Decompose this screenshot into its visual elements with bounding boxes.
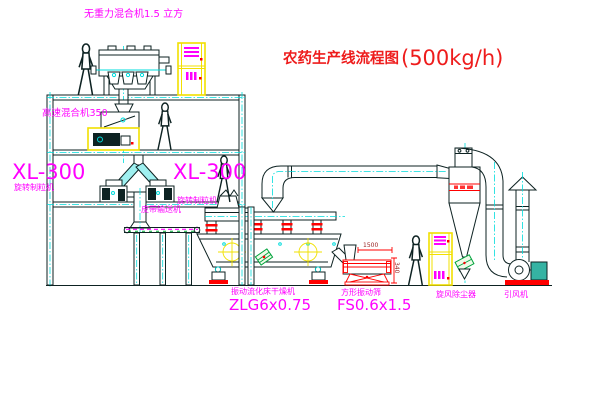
title-capacity: (500kg/h) (401, 46, 503, 70)
label-granulator-left-model: XL-300 (12, 162, 85, 183)
dimension-screen-height: 340 (393, 262, 399, 273)
cyclone-dust-collector (449, 143, 480, 283)
control-cabinet-top (178, 43, 205, 95)
control-cabinet-ground (429, 233, 452, 285)
vibrating-screen (343, 245, 397, 285)
belt-conveyor (124, 227, 200, 285)
label-granulator-right-name: 旋转制粒机 (177, 197, 217, 205)
exhaust-duct (262, 165, 450, 208)
label-granulator-left-name: 旋转制粒机 (14, 184, 54, 192)
cyclone-band-marks (454, 186, 473, 190)
dimension-screen-length: 1500 (363, 243, 378, 249)
label-belt-conveyor: 皮带输送机 (141, 206, 181, 214)
diagram-canvas: 农药生产线流程图(500kg/h) 无重力混合机1.5 立方 高速混合机350 … (0, 0, 600, 403)
label-fan: 引风机 (504, 291, 528, 299)
label-cyclone: 旋风除尘器 (436, 291, 476, 299)
title-text: 农药生产线流程图 (283, 51, 399, 67)
label-granulator-right-model: XL-300 (173, 162, 246, 183)
label-screen-model: FS0.6x1.5 (337, 298, 411, 313)
label-dryer-model: ZLG6x0.75 (229, 298, 311, 313)
label-high-speed-mixer: 高速混合机350 (42, 109, 108, 119)
induced-draft-fan (505, 260, 549, 286)
label-dryer-name: 振动流化床干燥机 (231, 288, 295, 296)
granulator-left (100, 180, 134, 202)
label-gravity-mixer: 无重力混合机1.5 立方 (84, 10, 183, 20)
diagram-title: 农药生产线流程图(500kg/h) (283, 46, 503, 70)
